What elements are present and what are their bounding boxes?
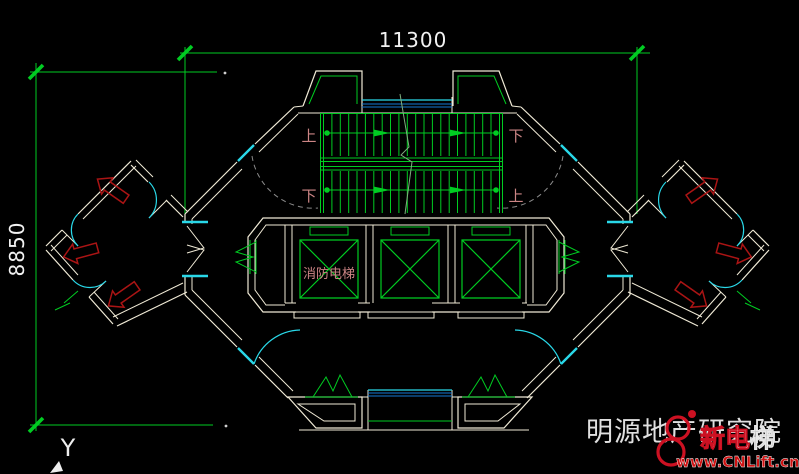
door-swing-arc <box>71 214 78 246</box>
counterweight-box <box>391 227 429 235</box>
bank-louver-left <box>236 240 256 274</box>
stair-treads-upper-flight <box>332 114 491 156</box>
door-swing-arc <box>149 182 156 218</box>
louver-zigzag <box>313 375 352 397</box>
elevator-car-x-box <box>381 240 439 298</box>
direction-end-dot <box>493 130 499 136</box>
exit-route-arrows <box>61 171 143 314</box>
room-doors <box>62 182 167 297</box>
defpoint-dot <box>224 72 227 75</box>
side-unit-right <box>497 145 769 364</box>
window-glazing-lines <box>368 393 452 396</box>
wall-tick-mark <box>55 291 78 310</box>
counterweight-box <box>310 227 348 235</box>
door-leaves <box>187 226 204 272</box>
direction-start-dot <box>324 130 330 136</box>
window-glazing-lines <box>362 104 452 107</box>
dimension-value-top: 11300 <box>379 28 448 52</box>
side-room-walls <box>46 160 188 326</box>
vent-shaft-wall <box>288 397 362 428</box>
vent-shaft-wall <box>458 397 532 428</box>
window-bottom <box>299 390 529 430</box>
logo-url-text: www.CNLift.cn <box>676 453 799 471</box>
louver-zigzag <box>468 375 507 397</box>
extension-lines <box>185 47 637 214</box>
window-top <box>362 100 452 107</box>
counterweight-box <box>472 227 510 235</box>
stair-treads-lower-flight <box>332 171 491 213</box>
louver-lines <box>236 240 256 274</box>
axis-arrowhead <box>50 461 63 473</box>
elevator-door-sills <box>294 312 524 318</box>
elevator-shaft-1-fire-elevator: 消防电梯 <box>300 227 358 298</box>
ucs-y-axis-icon: Y <box>50 434 76 473</box>
defpoint-dot <box>225 425 228 428</box>
extension-lines <box>30 72 217 425</box>
stair-label-down-right: 下 <box>508 127 523 145</box>
stair-label-up-left: 上 <box>301 127 316 145</box>
direction-end-dot <box>493 187 499 193</box>
bank-louver-right <box>559 240 579 274</box>
elevator-bank: 消防电梯 <box>236 218 579 318</box>
vent-shaft-bottom-right <box>458 375 532 428</box>
direction-start-dot <box>324 187 330 193</box>
dimension-value-left: 8850 <box>5 222 29 277</box>
vent-box-liner <box>458 76 506 104</box>
vent-box-liner <box>309 76 357 104</box>
vent-box-top-left <box>303 71 362 106</box>
vent-shaft-bottom-left <box>288 375 362 428</box>
elevator-shaft-2 <box>381 227 439 298</box>
cad-viewport: 11300 8850 Y <box>0 0 799 474</box>
fire-elevator-label: 消防电梯 <box>303 266 355 282</box>
vent-box-top-right <box>453 71 512 106</box>
elevator-shaft-3 <box>462 227 520 298</box>
door-swing-arc <box>73 280 106 287</box>
y-axis-label: Y <box>60 434 76 462</box>
vent-shaft-inner <box>298 404 355 421</box>
stair-break-line <box>400 94 412 214</box>
double-swing-door <box>182 222 208 276</box>
stair-label-down-left: 下 <box>301 187 316 205</box>
logo-brand-text: 新电梯 <box>700 424 775 453</box>
louver-lines <box>559 240 579 274</box>
side-unit-left <box>46 145 318 364</box>
vent-shaft-inner <box>465 404 520 421</box>
door-sills <box>182 222 208 276</box>
floorplan-drawing: 11300 8850 Y <box>0 0 799 474</box>
staircase: 上 下 下 上 <box>301 94 523 214</box>
dimension-top: 11300 <box>178 28 650 214</box>
elevator-car-x-box <box>462 240 520 298</box>
stair-label-up-right: 上 <box>508 187 523 205</box>
